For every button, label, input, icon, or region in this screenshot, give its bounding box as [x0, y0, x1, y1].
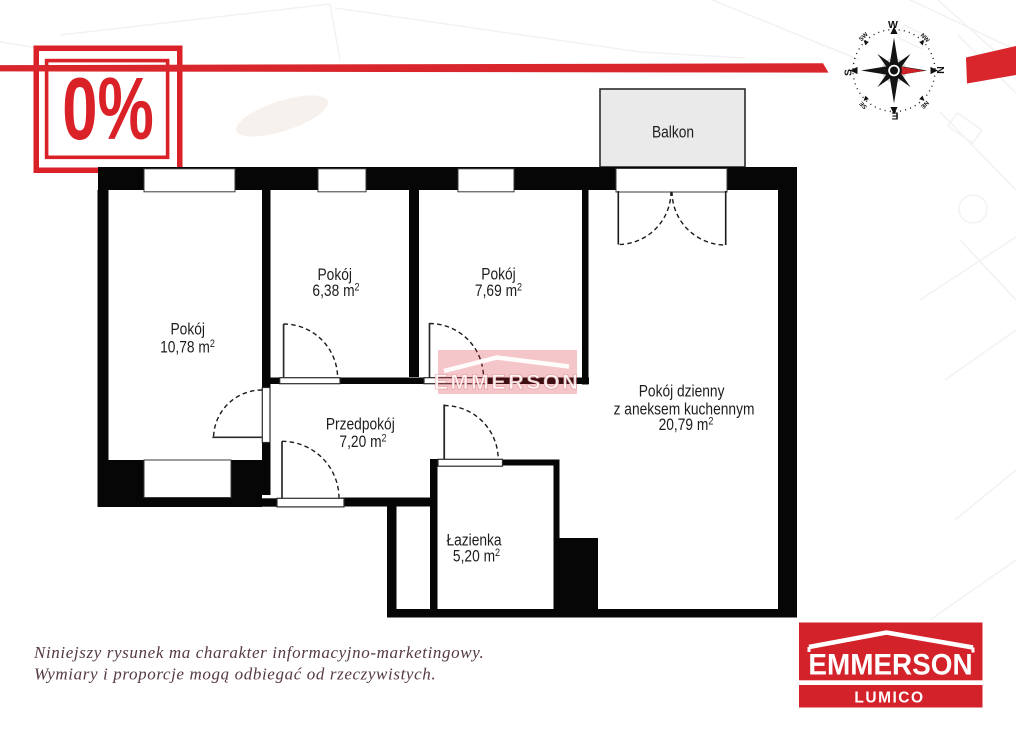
svg-text:EMMERSON: EMMERSON [808, 649, 972, 682]
svg-text:EMMERSON: EMMERSON [434, 370, 581, 394]
svg-text:20,79 m2: 20,79 m2 [659, 416, 714, 435]
svg-text:Pokój: Pokój [170, 320, 204, 339]
svg-text:10,78 m2: 10,78 m2 [160, 338, 215, 357]
svg-text:Wymiary i proporcje mogą odbie: Wymiary i proporcje mogą odbiegać od rze… [34, 665, 436, 684]
svg-text:0%: 0% [62, 61, 154, 159]
svg-text:Przedpokój: Przedpokój [326, 415, 395, 434]
svg-text:LUMICO: LUMICO [854, 690, 924, 707]
svg-text:6,38 m2: 6,38 m2 [312, 282, 359, 301]
svg-text:SW: SW [859, 32, 870, 43]
svg-text:NE: NE [919, 99, 929, 109]
svg-text:N: N [934, 66, 946, 74]
svg-text:Balkon: Balkon [652, 123, 694, 142]
svg-text:Pokój dzienny: Pokój dzienny [639, 382, 725, 401]
svg-text:S: S [843, 69, 855, 76]
svg-text:W: W [888, 19, 898, 31]
svg-text:E: E [891, 110, 898, 122]
svg-text:7,69 m2: 7,69 m2 [475, 282, 522, 301]
svg-text:5,20 m2: 5,20 m2 [453, 547, 500, 566]
svg-text:7,20 m2: 7,20 m2 [339, 433, 386, 452]
svg-text:Niniejszy rysunek ma charakter: Niniejszy rysunek ma charakter informacy… [33, 643, 484, 662]
